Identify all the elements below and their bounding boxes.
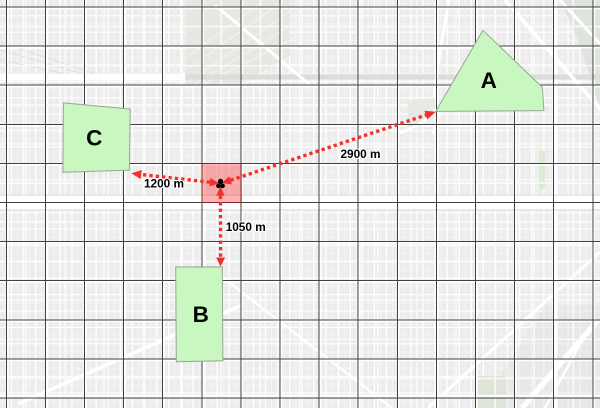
svg-text:C: C <box>86 126 102 151</box>
svg-text:1200 m: 1200 m <box>144 177 184 191</box>
svg-text:1050 m: 1050 m <box>226 220 266 234</box>
svg-text:B: B <box>193 302 209 327</box>
svg-text:2900 m: 2900 m <box>340 147 380 161</box>
svg-text:A: A <box>481 68 497 93</box>
